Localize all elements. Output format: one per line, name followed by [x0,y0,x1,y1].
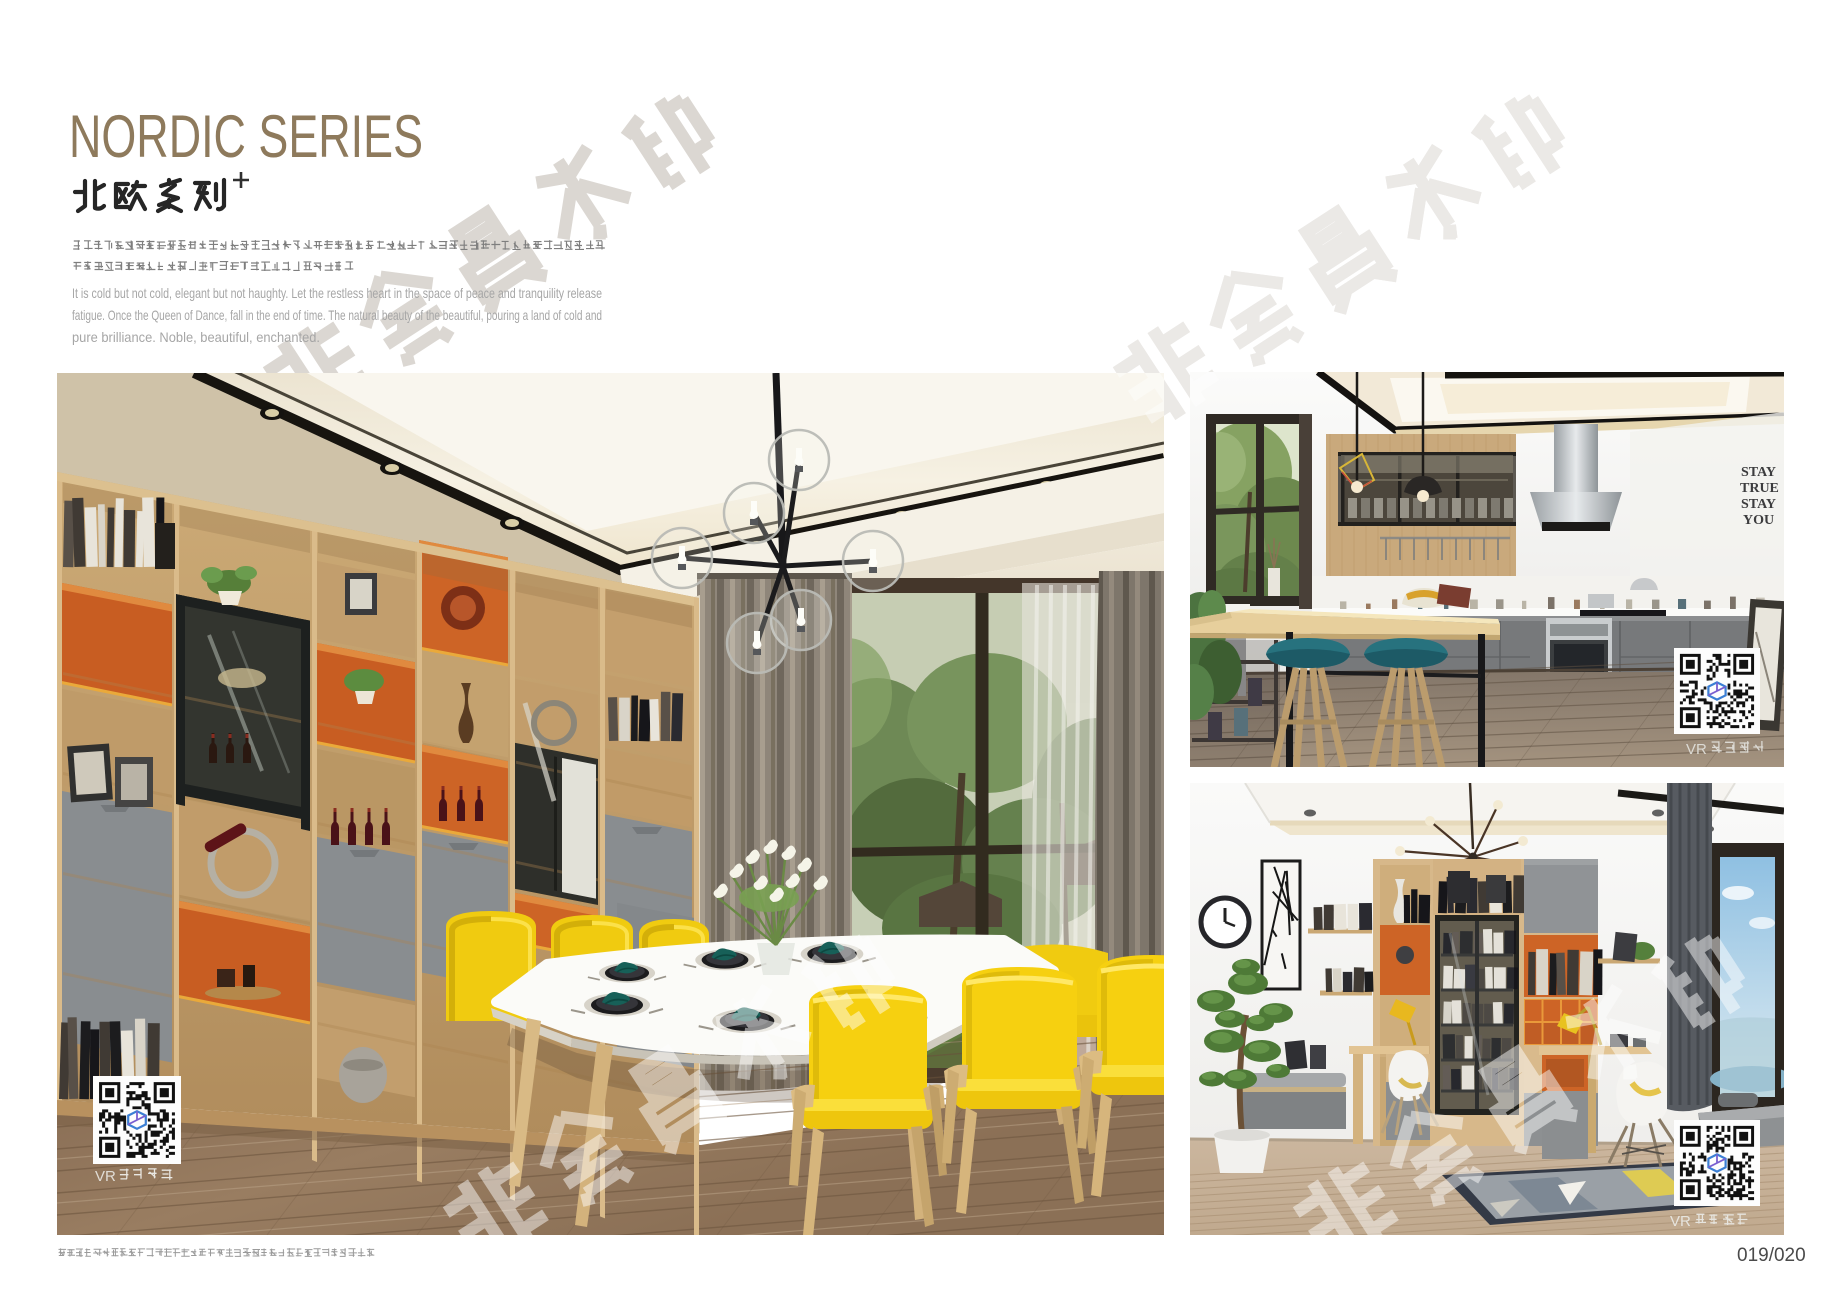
svg-text:STAY: STAY [1741,465,1776,480]
svg-text:019/020: 019/020 [1737,1245,1806,1266]
svg-text:fatigue. Once the Queen of Dan: fatigue. Once the Queen of Dance, fall i… [72,308,602,323]
svg-text:It is cold but not cold, elega: It is cold but not cold, elegant but not… [72,286,602,301]
svg-text:VR: VR [95,1168,116,1185]
svg-text:VR: VR [1686,741,1707,758]
svg-text:pure brilliance. Noble, beauti: pure brilliance. Noble, beautiful, encha… [72,330,320,345]
svg-text:YOU: YOU [1743,513,1774,528]
svg-text:TRUE: TRUE [1740,481,1779,496]
svg-text:NORDIC SERIES: NORDIC SERIES [69,103,423,170]
svg-text:VR: VR [1670,1213,1691,1230]
svg-text:STAY: STAY [1741,497,1776,512]
